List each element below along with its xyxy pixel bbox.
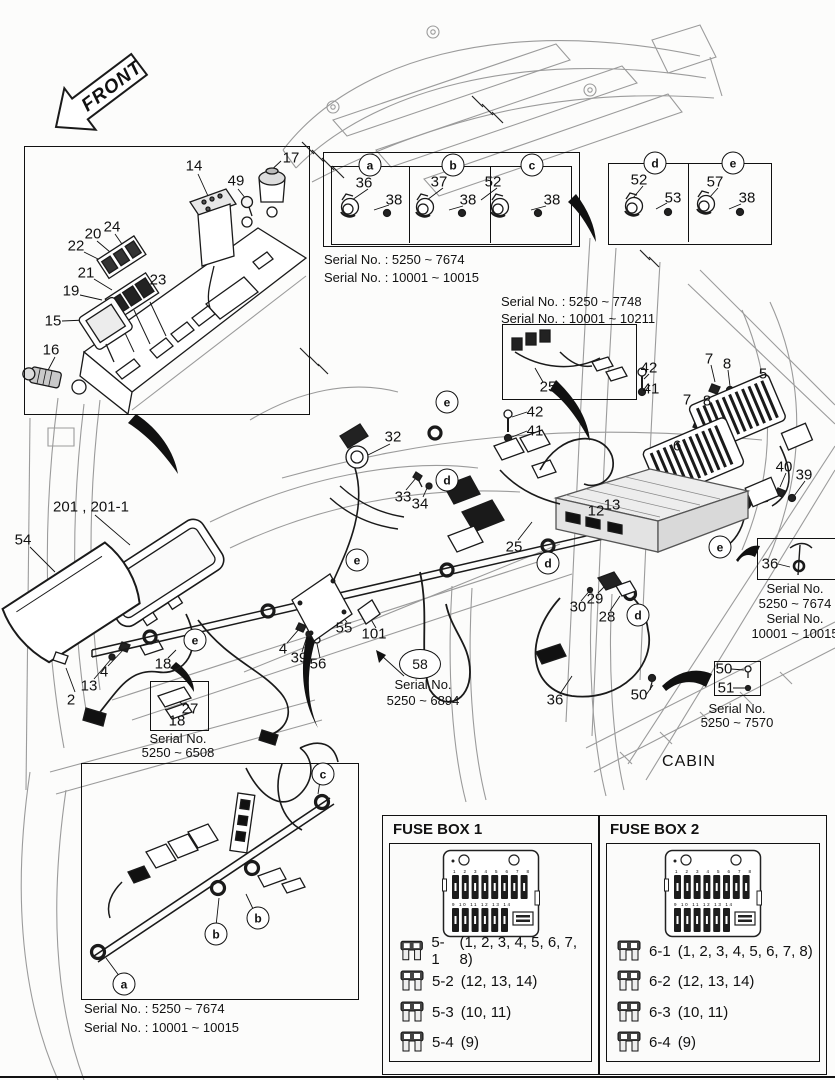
- circle-letter-e: e: [709, 536, 732, 559]
- part-label-41: 41: [527, 424, 544, 439]
- part-label-29: 29: [587, 592, 604, 607]
- part-label-28: 28: [599, 610, 616, 625]
- part-label-39: 39: [796, 468, 813, 483]
- part-label-13: 13: [81, 679, 98, 694]
- part-label-49: 49: [228, 174, 245, 189]
- part-label-13: 13: [604, 498, 621, 513]
- circle-letter-b: b: [205, 923, 228, 946]
- circle-letter-e: e: [346, 549, 369, 572]
- part-label-7: 7: [683, 393, 691, 408]
- part-label-20: 20: [85, 227, 102, 242]
- circle-letter-e: e: [436, 391, 459, 414]
- part-label-30: 30: [570, 600, 587, 615]
- part-label-2: 2: [67, 693, 75, 708]
- circle-letter-d: d: [537, 552, 560, 575]
- circle-letter-b: b: [247, 907, 270, 930]
- part-label-32: 32: [385, 430, 402, 445]
- part-label-57: 57: [707, 175, 724, 190]
- part-label-7: 7: [705, 352, 713, 367]
- part-label-52: 52: [631, 173, 648, 188]
- part-label-14: 14: [186, 159, 203, 174]
- circle-letter-a: a: [113, 973, 136, 996]
- part-label-39: 39: [291, 651, 308, 666]
- part-label-6: 6: [673, 439, 681, 454]
- part-label-40: 40: [776, 460, 793, 475]
- part-label-18: 18: [169, 714, 186, 729]
- part-label-53: 53: [665, 191, 682, 206]
- circle-letter-d: d: [644, 152, 667, 175]
- part-label-34: 34: [412, 497, 429, 512]
- part-label-4: 4: [100, 665, 108, 680]
- part-label-36: 36: [762, 557, 779, 572]
- circle-letter-e: e: [722, 152, 745, 175]
- part-label-12: 12: [588, 504, 605, 519]
- circle-letter-d: d: [627, 604, 650, 627]
- part-label-38: 38: [386, 193, 403, 208]
- part-label-38: 38: [460, 193, 477, 208]
- part-label-33: 33: [395, 490, 412, 505]
- part-label-54: 54: [15, 533, 32, 548]
- part-label-52: 52: [485, 175, 502, 190]
- parts-diagram-page: FRONT Serial No. : 5250 ~ 7674 Serial No…: [0, 0, 835, 1080]
- part-label-16: 16: [43, 343, 60, 358]
- part-label-38: 38: [739, 191, 756, 206]
- circle-letter-d: d: [436, 469, 459, 492]
- circle-letter-a: a: [359, 154, 382, 177]
- part-label-37: 37: [431, 175, 448, 190]
- part-label-50: 50: [631, 688, 648, 703]
- part-label-22: 22: [68, 239, 85, 254]
- part-label-17: 17: [283, 151, 300, 166]
- circle-letter-b: b: [442, 154, 465, 177]
- part-label-15: 15: [45, 314, 62, 329]
- part-label-201201-1: 201 , 201-1: [53, 500, 129, 515]
- part-label-25: 25: [506, 540, 523, 555]
- part-label-23: 23: [150, 273, 167, 288]
- part-label-51: 51: [718, 681, 735, 696]
- label-layer: 1449172420222119231516363837385238525357…: [0, 0, 835, 1080]
- part-label-41: 41: [643, 382, 660, 397]
- part-label-55: 55: [336, 621, 353, 636]
- part-label-24: 24: [104, 220, 121, 235]
- part-label-18: 18: [155, 657, 172, 672]
- part-label-8: 8: [703, 394, 711, 409]
- part-label-42: 42: [527, 405, 544, 420]
- part-label-8: 8: [723, 357, 731, 372]
- part-label-5: 5: [759, 367, 767, 382]
- part-label-38: 38: [544, 193, 561, 208]
- part-label-36: 36: [356, 176, 373, 191]
- part-label-50: 50: [716, 662, 733, 677]
- part-label-101: 101: [361, 627, 386, 642]
- circle-letter-c: c: [521, 154, 544, 177]
- circle-letter-c: c: [312, 763, 335, 786]
- circle-letter-e: e: [184, 629, 207, 652]
- part-label-25: 25: [540, 380, 557, 395]
- part-label-56: 56: [310, 657, 327, 672]
- part-label-4: 4: [279, 642, 287, 657]
- part-label-42: 42: [641, 361, 658, 376]
- part-label-19: 19: [63, 284, 80, 299]
- part-label-36: 36: [547, 693, 564, 708]
- part-label-21: 21: [78, 266, 95, 281]
